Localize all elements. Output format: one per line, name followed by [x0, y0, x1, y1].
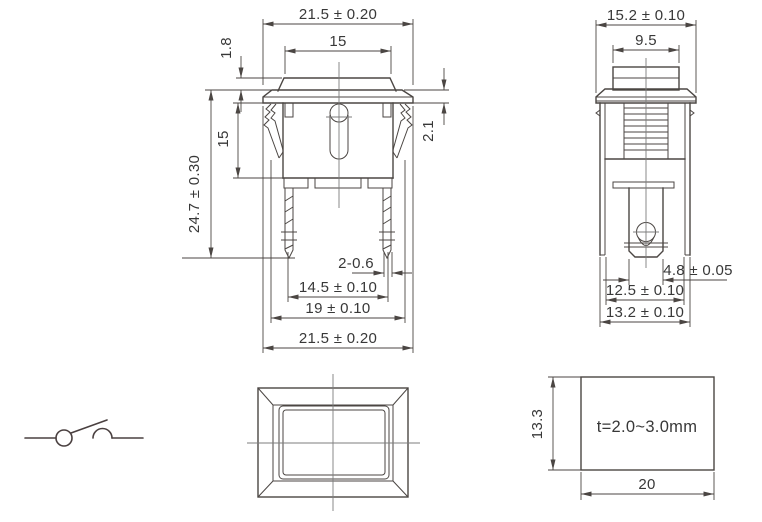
circuit-symbol-pivot	[56, 430, 72, 446]
dim-side-flange-depth-label: 13.2 ± 0.10	[606, 304, 684, 321]
dim-cutout-height: 13.3	[529, 377, 581, 470]
front-snap-wing-left	[264, 104, 283, 158]
front-flange	[263, 90, 413, 103]
circuit-symbol	[25, 420, 143, 446]
dim-front-button-height: 1.8	[205, 37, 282, 112]
dim-front-body-width-label: 19 ± 0.10	[305, 300, 370, 317]
dim-front-terminal-spacing-label: 14.5 ± 0.10	[299, 279, 377, 296]
front-snap-wing-right	[393, 104, 412, 158]
front-terminal-left	[281, 188, 297, 258]
dim-front-body-width: 19 ± 0.10	[271, 160, 405, 323]
dim-front-flange-thickness-label: 2.1	[420, 120, 437, 142]
dim-front-bottom-width-label: 21.5 ± 0.20	[299, 330, 377, 347]
dim-front-overall-height-label: 24.7 ± 0.30	[186, 155, 203, 233]
panel-cutout-view: t=2.0~3.0mm 13.3 20	[529, 377, 714, 500]
front-terminal-right	[379, 188, 395, 258]
top-view-button-outline	[279, 406, 389, 479]
dim-side-button-depth-label: 9.5	[635, 32, 657, 49]
drawing-canvas: 21.5 ± 0.20 15 1.8 24.7 ± 0.30 1	[0, 0, 762, 522]
top-view-button-inner	[283, 410, 385, 475]
dim-cutout-height-label: 13.3	[529, 409, 546, 439]
dim-side-body-depth-label: 12.5 ± 0.10	[606, 282, 684, 299]
front-body	[283, 103, 393, 188]
side-view: 15.2 ± 0.10 9.5 4.8 ± 0.05 12.5 ± 0.10	[596, 7, 733, 327]
circuit-symbol-lever	[71, 420, 107, 433]
dim-front-terminal-thickness-label: 2-0.6	[338, 255, 374, 272]
dim-front-flange-thickness: 2.1	[404, 68, 449, 142]
dim-side-overall-width-label: 15.2 ± 0.10	[607, 7, 685, 24]
top-view	[247, 374, 420, 511]
front-locator-posts	[285, 103, 391, 117]
dim-cutout-width: 20	[581, 472, 714, 500]
front-rocker-button	[278, 78, 396, 91]
dim-front-button-width: 15	[285, 33, 391, 74]
dim-front-top-width-label: 21.5 ± 0.20	[299, 6, 377, 23]
panel-thickness-note: t=2.0~3.0mm	[597, 418, 698, 436]
dim-side-terminal-width-label: 4.8 ± 0.05	[663, 262, 733, 279]
dim-front-terminal-thickness: 2-0.6	[338, 252, 412, 277]
dim-front-overall-height: 24.7 ± 0.30	[182, 90, 295, 258]
dim-front-button-height-label: 1.8	[218, 37, 235, 59]
front-center-slot	[326, 62, 352, 208]
dim-front-body-height-label: 15	[215, 130, 232, 147]
dim-front-button-width-label: 15	[329, 33, 346, 50]
circuit-symbol-contact	[93, 429, 112, 439]
dim-cutout-width-label: 20	[638, 476, 655, 493]
front-view: 21.5 ± 0.20 15 1.8 24.7 ± 0.30 1	[182, 6, 449, 353]
technical-drawing-page: 21.5 ± 0.20 15 1.8 24.7 ± 0.30 1	[0, 0, 762, 522]
